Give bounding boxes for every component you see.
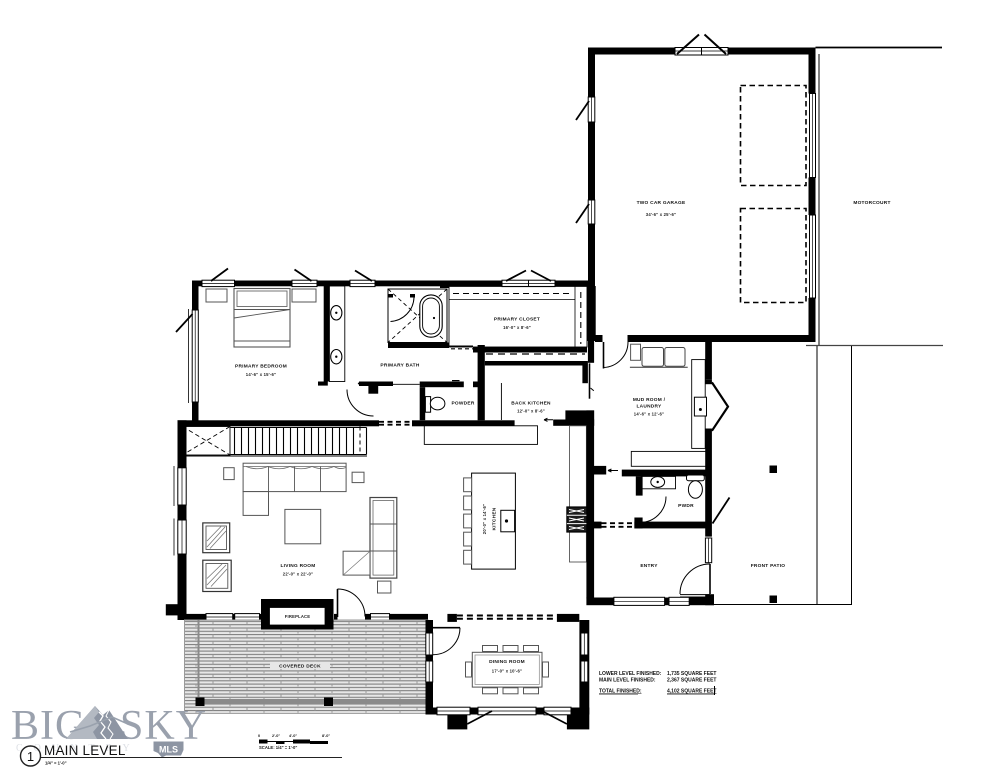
svg-text:MAIN LEVEL FINISHED:: MAIN LEVEL FINISHED: [599,678,656,684]
svg-text:34'-6" x 25'-6": 34'-6" x 25'-6" [646,212,676,217]
svg-text:1,735 SQUARE FEET: 1,735 SQUARE FEET [667,671,716,677]
svg-text:0: 0 [258,734,260,738]
svg-text:FIREPLACE: FIREPLACE [285,614,311,619]
svg-text:SCALE: 1/4" = 1'-0": SCALE: 1/4" = 1'-0" [259,745,297,750]
svg-text:1/4" = 1'-0": 1/4" = 1'-0" [45,761,67,766]
svg-text:2'-0": 2'-0" [272,734,280,738]
svg-text:4'-0": 4'-0" [289,734,297,738]
svg-text:KITCHEN: KITCHEN [492,507,498,530]
svg-text:POWDER: POWDER [451,401,474,407]
svg-text:PWDR: PWDR [678,503,694,509]
svg-text:TWO CAR GARAGE: TWO CAR GARAGE [637,200,686,206]
svg-text:COVERED DECK: COVERED DECK [279,664,321,670]
svg-text:LIVING ROOM: LIVING ROOM [281,563,316,569]
svg-text:12'-0" x 8'-6": 12'-0" x 8'-6" [517,409,545,414]
svg-text:MLS: MLS [159,745,178,755]
svg-text:PRIMARY CLOSET: PRIMARY CLOSET [494,317,540,323]
svg-text:17'-0" x 10'-6": 17'-0" x 10'-6" [492,669,522,674]
svg-text:LAUNDRY: LAUNDRY [636,404,662,410]
svg-text:BACK KITCHEN: BACK KITCHEN [511,401,551,407]
svg-text:MUD ROOM /: MUD ROOM / [633,397,666,403]
svg-text:MAIN LEVEL: MAIN LEVEL [44,743,126,758]
svg-text:LOWER LEVEL FINISHED:: LOWER LEVEL FINISHED: [599,671,662,677]
svg-text:ENTRY: ENTRY [640,563,658,569]
svg-text:14'-6" x 15'-6": 14'-6" x 15'-6" [246,372,276,377]
svg-text:8'-0": 8'-0" [322,734,330,738]
svg-text:16'-0" x 8'-6": 16'-0" x 8'-6" [503,325,531,330]
svg-text:1: 1 [27,749,34,764]
svg-text:DINING ROOM: DINING ROOM [489,659,525,665]
svg-text:14'-6" x 12'-6": 14'-6" x 12'-6" [634,412,664,417]
svg-text:2,367 SQUARE FEET: 2,367 SQUARE FEET [667,678,716,684]
svg-text:FRONT PATIO: FRONT PATIO [751,563,786,569]
svg-text:MOTORCOURT: MOTORCOURT [853,200,890,206]
svg-text:PRIMARY BATH: PRIMARY BATH [380,363,419,369]
svg-text:20'-0" x 14'-6": 20'-0" x 14'-6" [482,504,487,534]
svg-text:PRIMARY BEDROOM: PRIMARY BEDROOM [235,364,287,370]
svg-text:22'-0" x 22'-0": 22'-0" x 22'-0" [283,572,313,577]
